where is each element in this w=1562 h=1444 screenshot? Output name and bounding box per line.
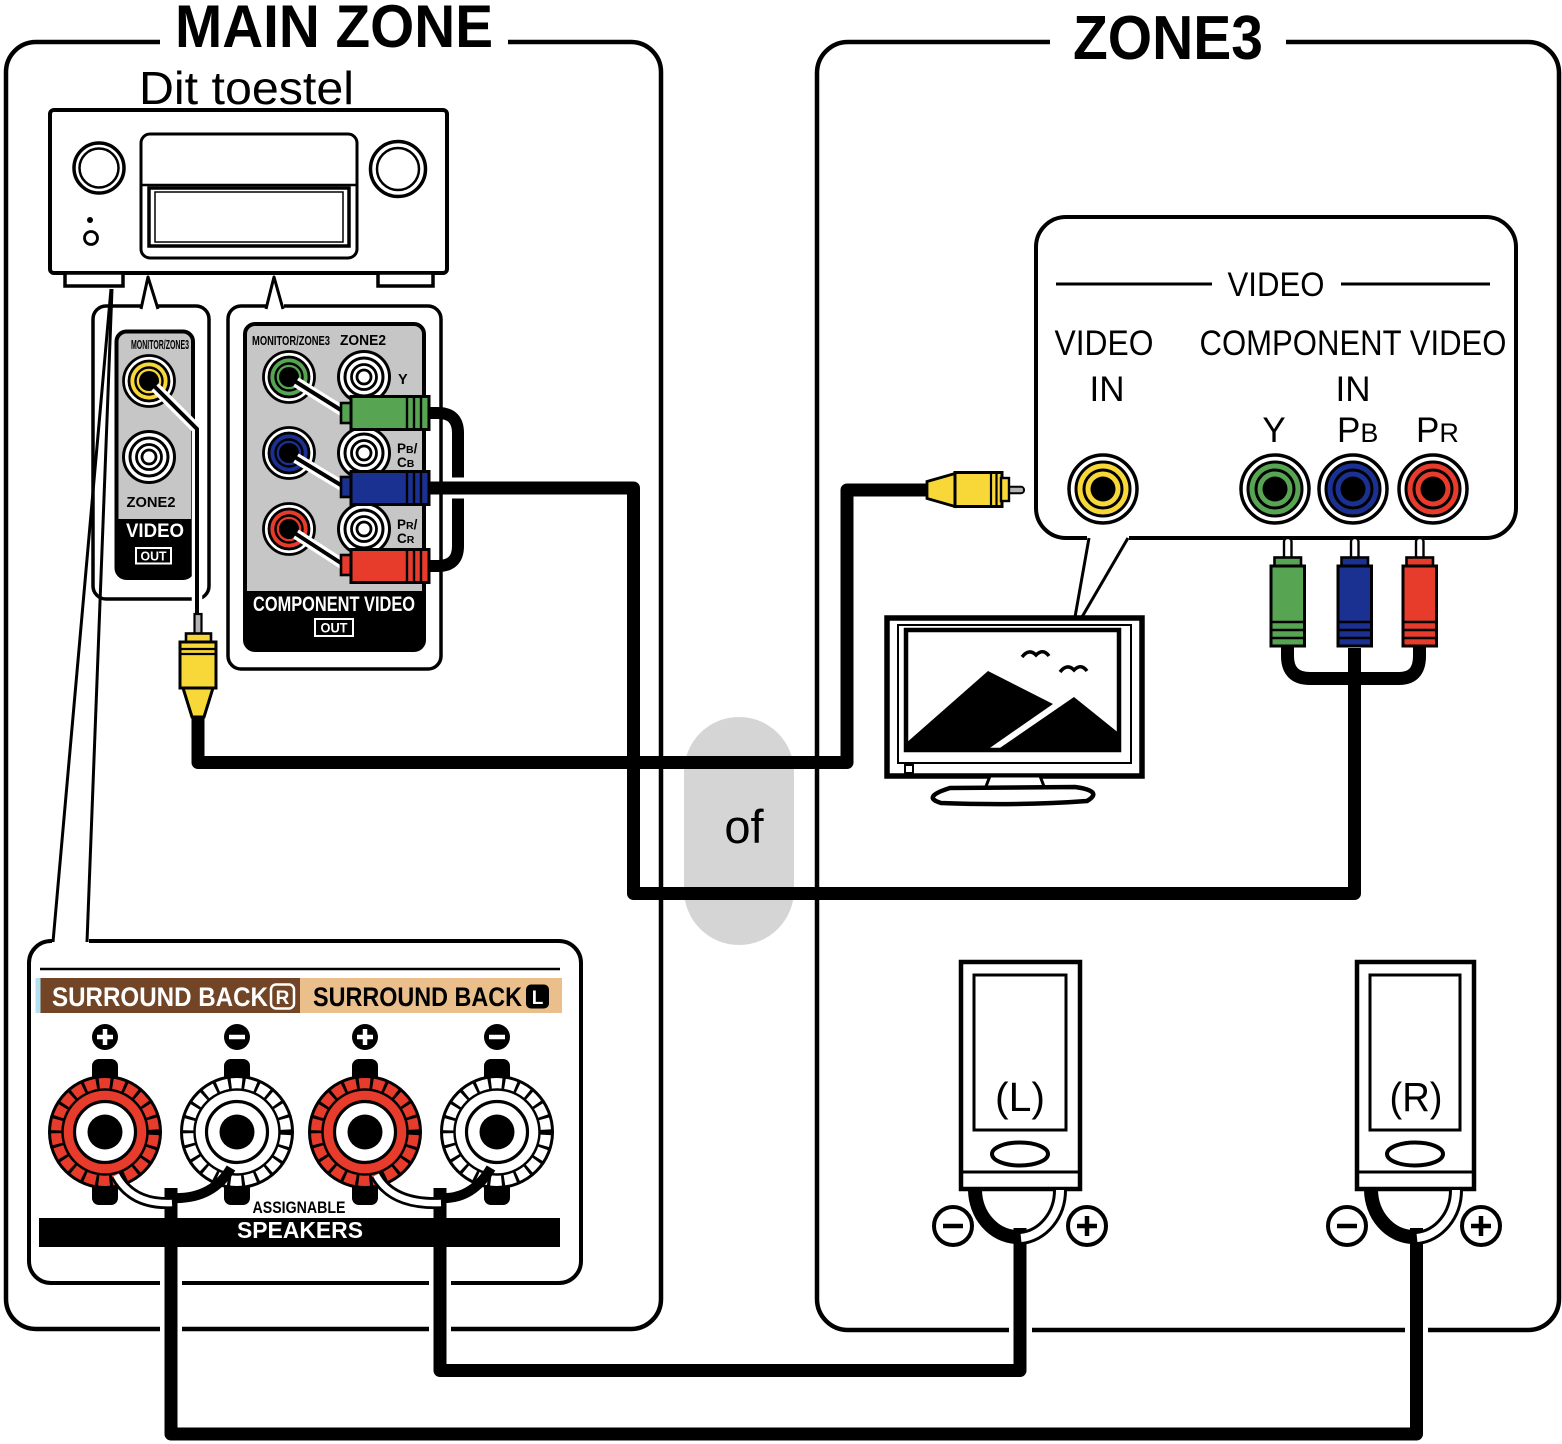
- svg-text:Y: Y: [1262, 411, 1285, 450]
- svg-text:ZONE2: ZONE2: [127, 495, 176, 511]
- svg-text:ASSIGNABLE: ASSIGNABLE: [253, 1198, 346, 1217]
- svg-text:ZONE3: ZONE3: [1073, 4, 1263, 73]
- svg-text:of: of: [724, 800, 764, 853]
- svg-text:(R): (R): [1390, 1074, 1443, 1120]
- svg-text:MAIN ZONE: MAIN ZONE: [175, 0, 493, 60]
- svg-text:VIDEO: VIDEO: [126, 521, 184, 542]
- svg-text:(L): (L): [995, 1074, 1045, 1120]
- svg-text:Dit toestel: Dit toestel: [139, 62, 354, 114]
- svg-text:SURROUND BACK: SURROUND BACK: [52, 982, 268, 1012]
- svg-text:CR: CR: [397, 531, 415, 546]
- svg-text:IN: IN: [1090, 370, 1125, 409]
- svg-text:IN: IN: [1336, 370, 1371, 409]
- svg-text:L: L: [532, 988, 544, 1009]
- svg-text:OUT: OUT: [141, 549, 167, 564]
- svg-text:COMPONENT VIDEO: COMPONENT VIDEO: [1200, 324, 1507, 363]
- svg-text:Y: Y: [398, 372, 408, 388]
- svg-text:COMPONENT VIDEO: COMPONENT VIDEO: [253, 593, 415, 616]
- svg-text:SURROUND BACK: SURROUND BACK: [313, 982, 522, 1012]
- svg-text:R: R: [276, 988, 290, 1009]
- svg-text:ZONE2: ZONE2: [340, 333, 386, 349]
- svg-text:MONITOR/ZONE3: MONITOR/ZONE3: [131, 338, 189, 352]
- svg-text:PR/: PR/: [397, 517, 418, 532]
- svg-text:SPEAKERS: SPEAKERS: [237, 1217, 363, 1243]
- svg-text:PB/: PB/: [397, 441, 418, 456]
- svg-text:MONITOR/ZONE3: MONITOR/ZONE3: [252, 334, 330, 348]
- svg-text:CB: CB: [397, 455, 415, 470]
- svg-text:VIDEO: VIDEO: [1228, 266, 1325, 304]
- svg-text:OUT: OUT: [321, 621, 349, 636]
- svg-text:VIDEO: VIDEO: [1055, 324, 1154, 363]
